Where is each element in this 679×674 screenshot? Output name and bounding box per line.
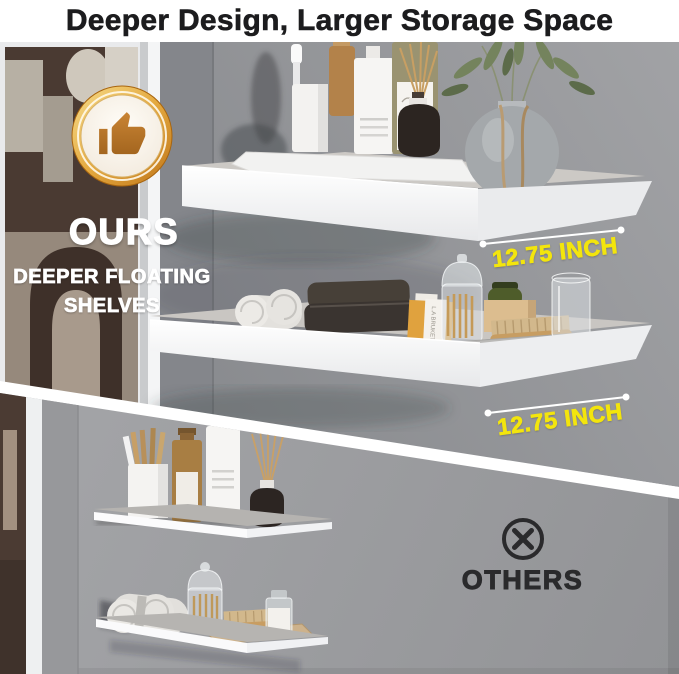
product-infographic: L.A BRUKET: [0, 0, 679, 674]
thumbs-up-icon: [70, 84, 174, 188]
dark-towel-stack: [303, 279, 419, 334]
glass-jar: [552, 273, 590, 338]
amber-bottle: [329, 36, 355, 116]
page-title: Deeper Design, Larger Storage Space: [66, 4, 613, 38]
ours-subtitle-line1: DEEPER FLOATING: [3, 263, 221, 292]
utensil-cup: [123, 428, 168, 518]
apothecary-jar: [442, 254, 482, 342]
others-block: OTHERS: [450, 516, 595, 596]
wall-art-frame-bottom: [0, 393, 78, 674]
white-bottle-small: [206, 416, 240, 520]
white-bottle: [354, 46, 394, 154]
approval-badge: [70, 84, 174, 188]
others-label: OTHERS: [450, 565, 595, 596]
ours-subtitle-line2: SHELVES: [3, 292, 221, 321]
circle-x-icon: [500, 516, 546, 562]
ours-subtitle: DEEPER FLOATING SHELVES: [3, 263, 221, 321]
title-bar: Deeper Design, Larger Storage Space: [0, 0, 679, 42]
ours-label: OURS: [24, 211, 224, 253]
